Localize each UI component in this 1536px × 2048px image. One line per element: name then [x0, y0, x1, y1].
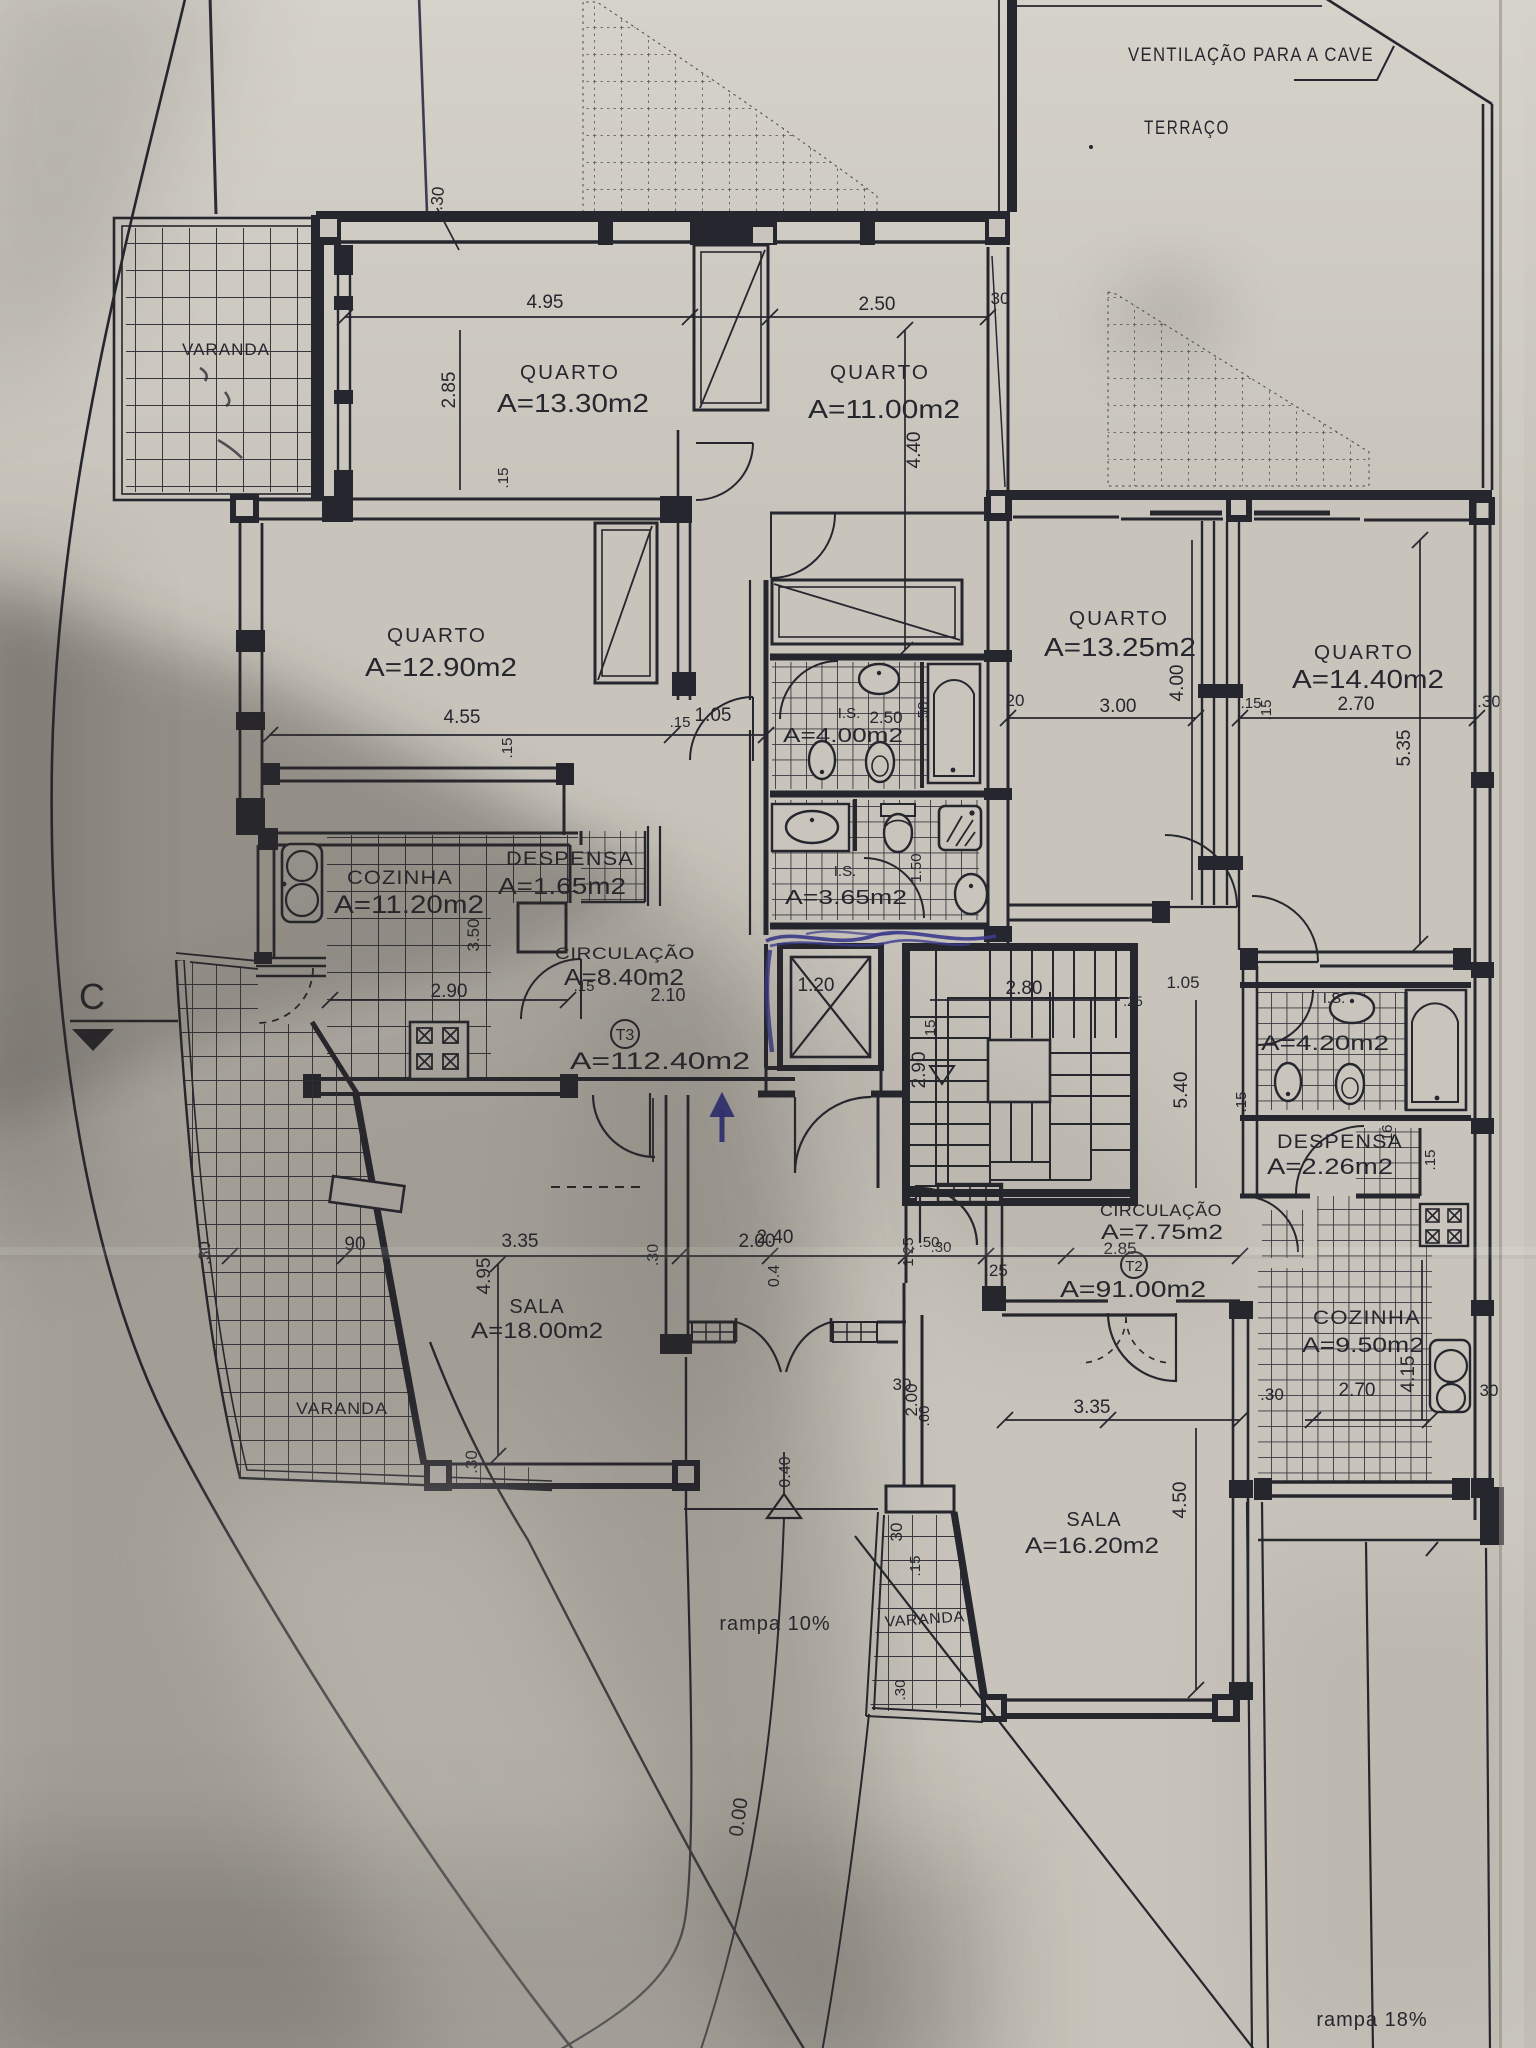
- svg-text:A=13.25m2: A=13.25m2: [1044, 632, 1196, 662]
- svg-text:2.70: 2.70: [1338, 694, 1375, 715]
- svg-text:TERRAÇO: TERRAÇO: [1144, 118, 1230, 139]
- svg-text:.16: .16: [1379, 1125, 1396, 1146]
- svg-text:.30: .30: [892, 1680, 909, 1701]
- svg-text:1.05: 1.05: [1166, 973, 1199, 992]
- svg-text:2.80: 2.80: [1006, 978, 1043, 999]
- svg-text:.25: .25: [1123, 993, 1143, 1009]
- svg-text:A=4.00m2: A=4.00m2: [783, 725, 903, 747]
- svg-text:.30: .30: [1260, 1385, 1284, 1404]
- svg-text:A=9.50m2: A=9.50m2: [1302, 1334, 1424, 1357]
- svg-text:.30: .30: [1477, 692, 1501, 711]
- svg-text:VARANDA: VARANDA: [182, 340, 270, 359]
- svg-text:4.40: 4.40: [904, 432, 925, 469]
- svg-text:A=4.20m2: A=4.20m2: [1261, 1032, 1389, 1055]
- svg-text:2.70: 2.70: [1339, 1380, 1376, 1401]
- svg-text:2.50: 2.50: [859, 294, 896, 315]
- svg-text:A=11.00m2: A=11.00m2: [808, 394, 960, 424]
- svg-text:I.S.: I.S.: [1323, 990, 1346, 1007]
- svg-text:.15: .15: [670, 714, 691, 731]
- svg-text:3.35: 3.35: [1074, 1397, 1111, 1418]
- svg-text:1.50: 1.50: [908, 853, 925, 882]
- svg-text:VENTILAÇÃO PARA A CAVE: VENTILAÇÃO PARA A CAVE: [1128, 44, 1374, 66]
- svg-text:A=16.20m2: A=16.20m2: [1025, 1533, 1159, 1558]
- svg-text:.15: .15: [499, 738, 516, 759]
- svg-text:A=3.65m2: A=3.65m2: [785, 887, 907, 909]
- svg-text:.60: .60: [916, 1406, 933, 1427]
- svg-text:QUARTO: QUARTO: [387, 625, 487, 647]
- svg-text:.15: .15: [495, 468, 512, 489]
- svg-text:I.S.: I.S.: [834, 863, 857, 880]
- svg-text:4.00: 4.00: [1167, 665, 1188, 702]
- svg-text:4.50: 4.50: [1170, 1482, 1191, 1519]
- svg-text:.15: .15: [907, 1556, 924, 1577]
- svg-text:.15: .15: [1258, 700, 1275, 721]
- svg-text:A=2.26m2: A=2.26m2: [1267, 1154, 1393, 1179]
- svg-text:COZINHA: COZINHA: [1313, 1308, 1421, 1329]
- svg-text:1.05: 1.05: [695, 705, 732, 726]
- svg-text:A=13.30m2: A=13.30m2: [497, 388, 649, 418]
- svg-text:30: 30: [1480, 1381, 1499, 1400]
- svg-text:.58: .58: [915, 702, 932, 723]
- svg-text:.15: .15: [1422, 1150, 1439, 1171]
- svg-text:SALA: SALA: [1066, 1509, 1121, 1531]
- svg-text:QUARTO: QUARTO: [520, 362, 620, 384]
- svg-text:3.00: 3.00: [1100, 696, 1137, 717]
- svg-text:4.15: 4.15: [1398, 1356, 1419, 1393]
- svg-text:30: 30: [991, 289, 1010, 308]
- svg-text:A=14.40m2: A=14.40m2: [1292, 664, 1444, 694]
- svg-text:QUARTO: QUARTO: [1314, 642, 1414, 664]
- svg-text:2.85: 2.85: [439, 372, 460, 409]
- svg-text:A=12.90m2: A=12.90m2: [365, 652, 517, 682]
- svg-text:5.35: 5.35: [1394, 730, 1415, 767]
- svg-text:.15: .15: [1233, 1092, 1250, 1113]
- svg-text:30: 30: [887, 1523, 906, 1542]
- svg-text:QUARTO: QUARTO: [1069, 608, 1169, 630]
- svg-text:20: 20: [1006, 691, 1025, 710]
- svg-text:4.95: 4.95: [527, 292, 564, 313]
- svg-text:.30: .30: [427, 186, 448, 211]
- svg-text:4.55: 4.55: [444, 707, 481, 728]
- svg-text:5.40: 5.40: [1171, 1072, 1192, 1109]
- svg-text:I.S.: I.S.: [838, 705, 861, 722]
- svg-text:QUARTO: QUARTO: [830, 362, 930, 384]
